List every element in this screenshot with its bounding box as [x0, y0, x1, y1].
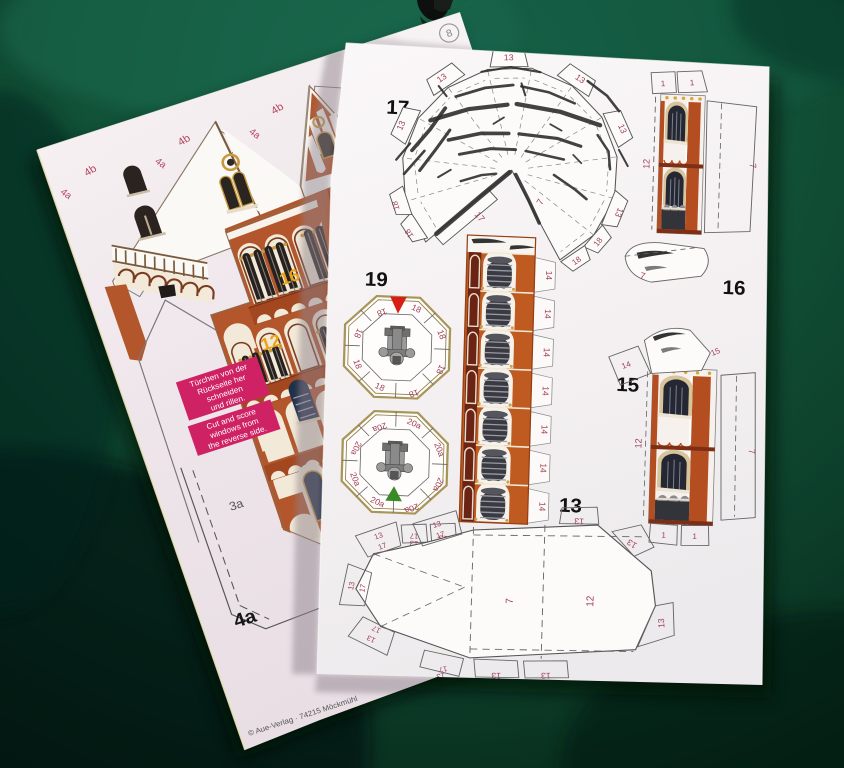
svg-text:14: 14 — [538, 463, 548, 473]
svg-text:7: 7 — [505, 598, 516, 604]
svg-text:7: 7 — [747, 449, 757, 454]
svg-text:13: 13 — [574, 516, 585, 527]
svg-text:13: 13 — [541, 671, 551, 681]
svg-text:15: 15 — [616, 374, 640, 396]
svg-text:12: 12 — [633, 438, 643, 448]
svg-text:19: 19 — [365, 269, 389, 291]
svg-text:14: 14 — [540, 386, 550, 396]
svg-text:14: 14 — [539, 425, 549, 435]
svg-text:1: 1 — [661, 531, 666, 540]
svg-text:12: 12 — [585, 595, 597, 607]
svg-text:16: 16 — [722, 277, 746, 299]
svg-text:7: 7 — [748, 163, 758, 168]
svg-text:14: 14 — [542, 348, 552, 358]
svg-text:1: 1 — [692, 532, 697, 541]
svg-text:14: 14 — [543, 309, 553, 319]
svg-text:14: 14 — [537, 502, 547, 512]
svg-text:13: 13 — [559, 495, 583, 517]
svg-text:14: 14 — [544, 271, 554, 281]
svg-text:12: 12 — [641, 159, 651, 169]
svg-text:13: 13 — [656, 618, 667, 628]
svg-text:13: 13 — [504, 52, 514, 62]
